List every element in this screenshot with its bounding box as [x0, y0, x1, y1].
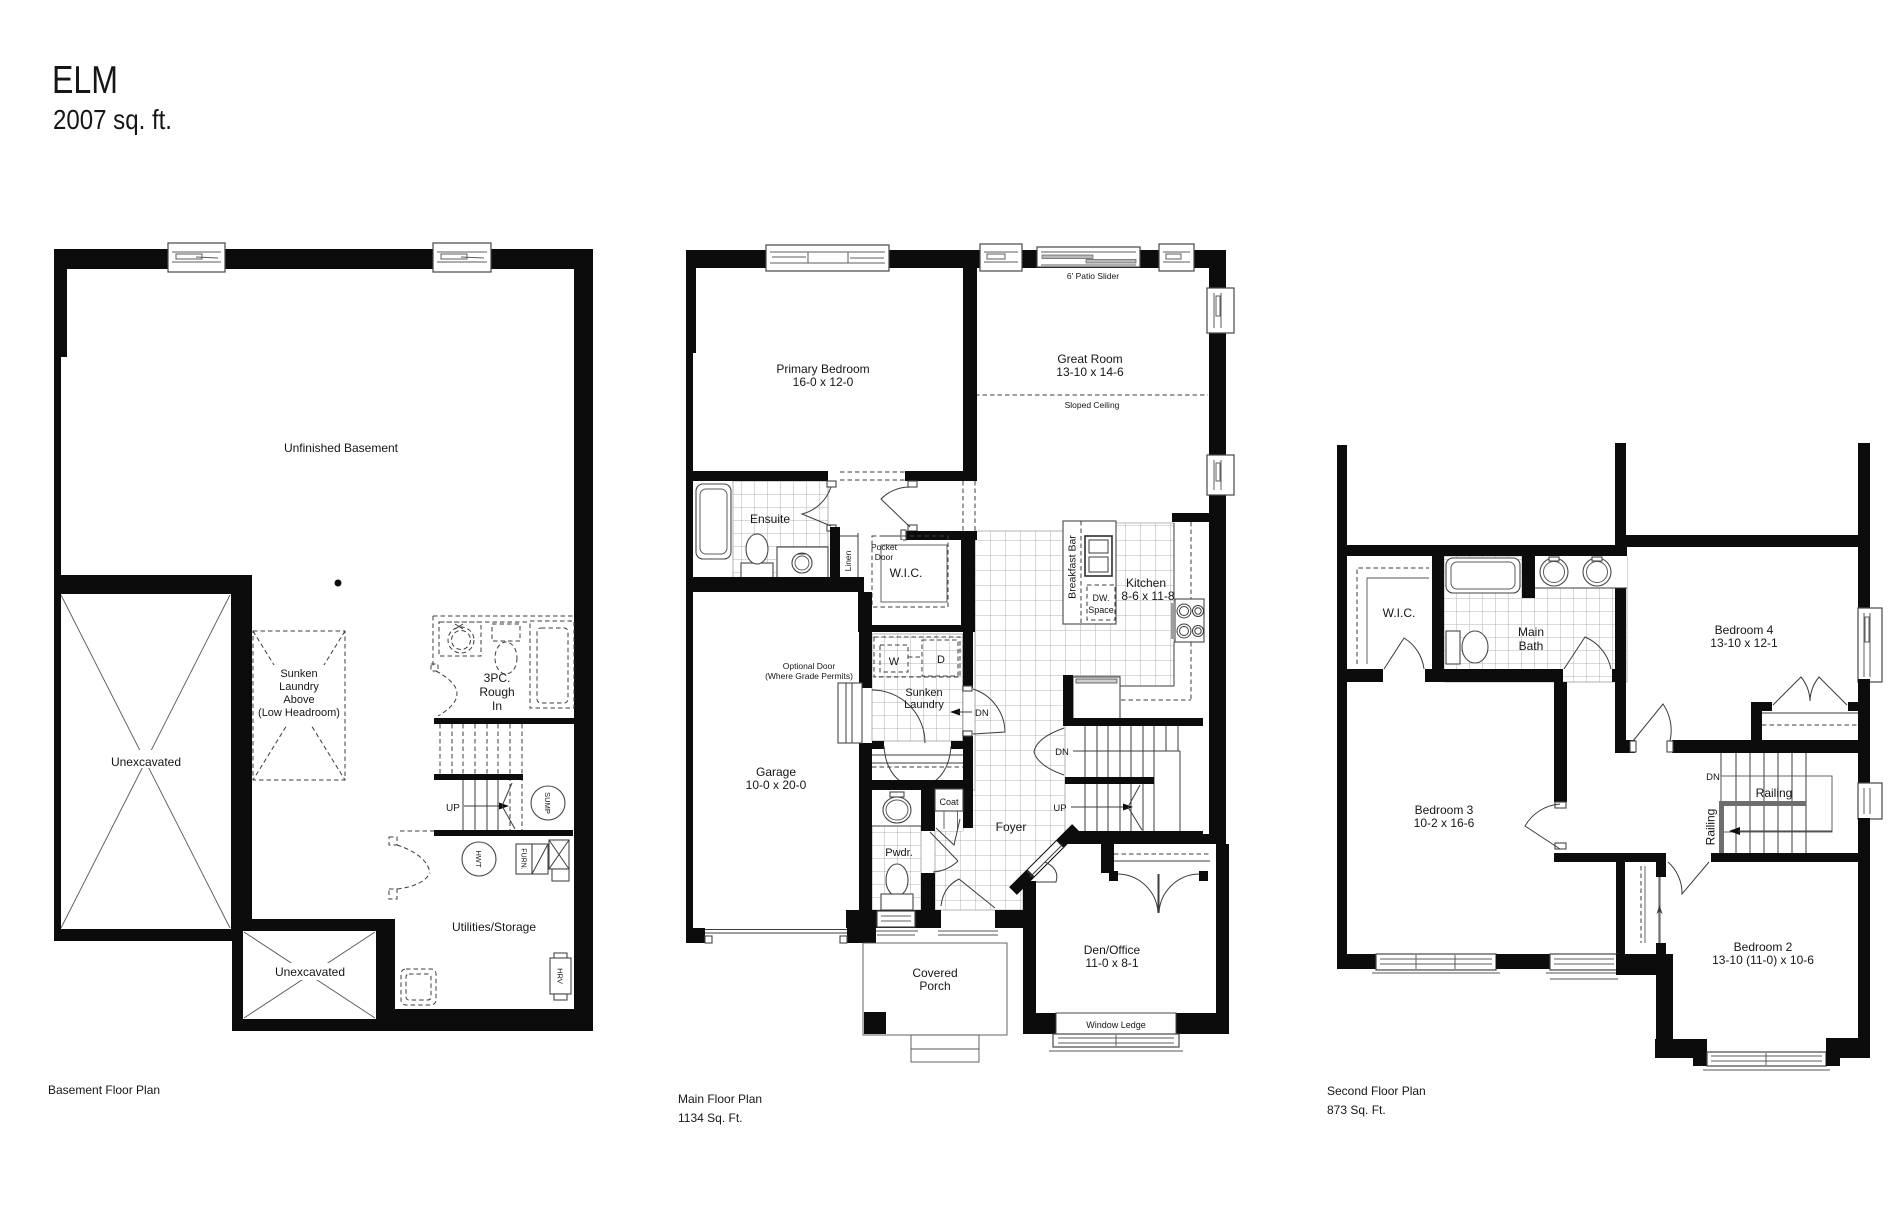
svg-text:DN: DN [975, 708, 989, 719]
svg-text:FURN.: FURN. [520, 848, 527, 869]
svg-text:Sloped Ceiling: Sloped Ceiling [1065, 400, 1120, 410]
svg-text:Pwdr.: Pwdr. [885, 847, 913, 859]
svg-text:16-0 x 12-0: 16-0 x 12-0 [793, 375, 854, 389]
svg-text:Unexcavated: Unexcavated [111, 755, 181, 769]
svg-text:(Where Grade Permits): (Where Grade Permits) [765, 671, 853, 681]
svg-text:Unexcavated: Unexcavated [275, 965, 345, 979]
svg-text:Door: Door [875, 552, 894, 562]
svg-text:Ensuite: Ensuite [750, 512, 790, 526]
svg-text:6' Patio Slider: 6' Patio Slider [1067, 271, 1119, 281]
svg-text:Basement Floor Plan: Basement Floor Plan [48, 1083, 160, 1097]
svg-text:Den/Office: Den/Office [1084, 943, 1141, 957]
svg-text:Sunken: Sunken [280, 668, 317, 680]
svg-text:13-10 (11-0) x 10-6: 13-10 (11-0) x 10-6 [1712, 953, 1814, 967]
svg-text:Laundry: Laundry [279, 681, 319, 693]
svg-text:Unfinished Basement: Unfinished Basement [284, 441, 399, 455]
svg-text:Above: Above [283, 694, 314, 706]
svg-text:Garage: Garage [756, 765, 796, 779]
svg-text:2007 sq. ft.: 2007 sq. ft. [53, 104, 172, 135]
svg-text:873 Sq. Ft.: 873 Sq. Ft. [1327, 1103, 1386, 1117]
svg-text:UP: UP [446, 803, 460, 814]
svg-text:Pocket: Pocket [871, 542, 898, 552]
svg-text:In: In [492, 699, 502, 713]
svg-text:W.I.C.: W.I.C. [890, 566, 923, 580]
svg-text:W: W [889, 656, 900, 668]
svg-text:Bedroom 3: Bedroom 3 [1415, 803, 1474, 817]
svg-text:Railing: Railing [1704, 809, 1718, 846]
svg-text:Primary Bedroom: Primary Bedroom [776, 362, 869, 376]
svg-text:3PC.: 3PC. [484, 671, 511, 685]
svg-text:ELM: ELM [52, 59, 118, 102]
svg-text:(Low Headroom): (Low Headroom) [258, 707, 340, 719]
svg-text:Main Floor Plan: Main Floor Plan [678, 1092, 762, 1106]
svg-text:1134 Sq. Ft.: 1134 Sq. Ft. [678, 1111, 742, 1125]
svg-text:11-0 x 8-1: 11-0 x 8-1 [1085, 956, 1138, 970]
svg-text:13-10 x 14-6: 13-10 x 14-6 [1056, 365, 1124, 379]
svg-text:Linen: Linen [843, 550, 853, 571]
svg-text:DN: DN [1055, 747, 1069, 758]
svg-text:Rough: Rough [479, 685, 514, 699]
svg-text:13-10 x 12-1: 13-10 x 12-1 [1710, 636, 1778, 650]
svg-text:Coat: Coat [939, 797, 959, 807]
svg-text:Covered: Covered [912, 966, 957, 980]
svg-text:Space: Space [1088, 605, 1114, 615]
svg-text:Sunken: Sunken [905, 687, 942, 699]
svg-text:Bedroom 4: Bedroom 4 [1715, 623, 1774, 637]
svg-text:Optional Door: Optional Door [783, 661, 836, 671]
svg-text:Bedroom 2: Bedroom 2 [1734, 940, 1793, 954]
svg-text:Main: Main [1518, 625, 1544, 639]
svg-text:Laundry: Laundry [904, 699, 944, 711]
svg-text:Railing: Railing [1756, 786, 1793, 800]
svg-text:DN: DN [1706, 772, 1720, 783]
svg-text:Porch: Porch [919, 979, 950, 993]
svg-text:W.I.C.: W.I.C. [1383, 606, 1416, 620]
svg-text:Kitchen: Kitchen [1126, 576, 1166, 590]
svg-text:HWT: HWT [474, 850, 483, 867]
svg-text:Utilities/Storage: Utilities/Storage [452, 920, 536, 934]
svg-text:DW.: DW. [1093, 593, 1110, 603]
svg-text:UP: UP [1053, 803, 1066, 814]
svg-text:Foyer: Foyer [996, 820, 1027, 834]
svg-text:D: D [937, 654, 945, 666]
svg-text:Breakfast Bar: Breakfast Bar [1067, 535, 1079, 599]
svg-text:HRV: HRV [556, 968, 565, 984]
svg-text:10-2 x 16-6: 10-2 x 16-6 [1414, 816, 1475, 830]
svg-text:Great Room: Great Room [1057, 352, 1122, 366]
svg-text:SUMP: SUMP [543, 792, 552, 814]
svg-text:10-0 x 20-0: 10-0 x 20-0 [746, 778, 807, 792]
svg-text:Second Floor Plan: Second Floor Plan [1327, 1084, 1426, 1098]
svg-text:Window Ledge: Window Ledge [1086, 1020, 1146, 1030]
svg-text:Bath: Bath [1519, 639, 1544, 653]
svg-text:8-6 x 11-8: 8-6 x 11-8 [1121, 589, 1174, 603]
